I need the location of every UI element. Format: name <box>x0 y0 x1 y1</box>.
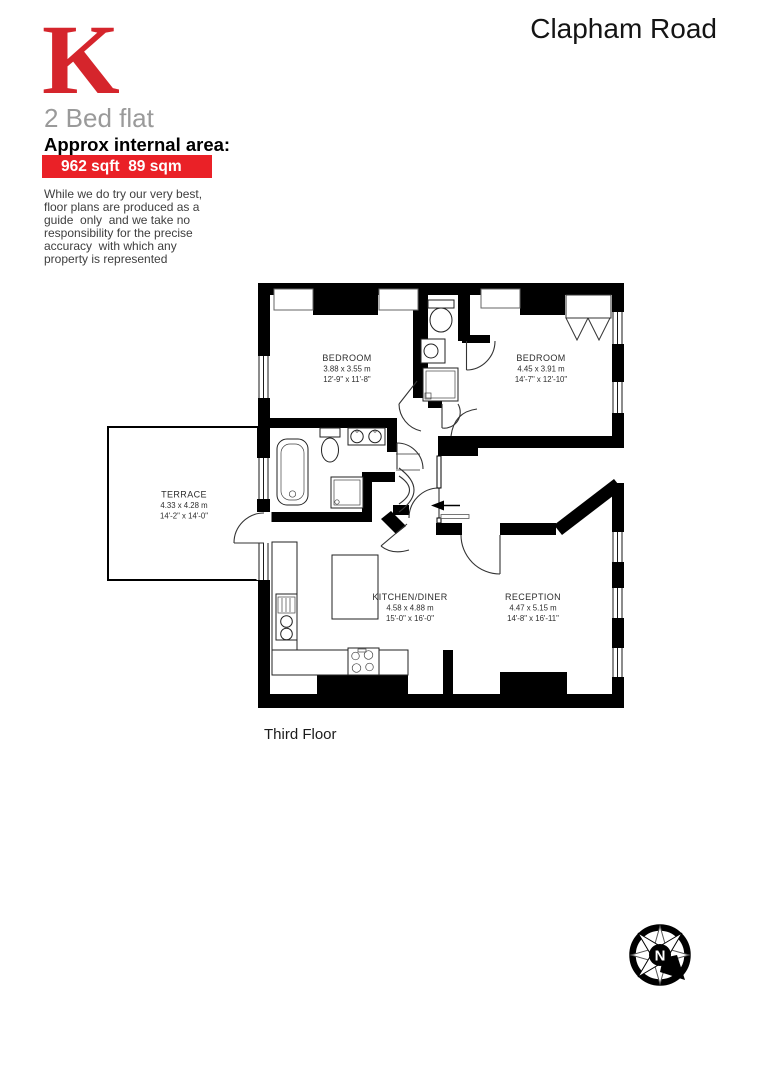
kitchen-island <box>332 555 378 619</box>
room-label-terrace: TERRACE 4.33 x 4.28 m 14'-2" x 14'-0" <box>160 490 208 521</box>
windows <box>257 312 626 677</box>
compass-north-label: N <box>655 948 666 965</box>
wardrobe-icon <box>566 295 611 340</box>
window <box>611 532 626 562</box>
floorplan-page: K Clapham Road 2 Bed flat Approx interna… <box>0 0 764 1080</box>
room-label-bedroom1: BEDROOM 3.88 x 3.55 m 12'-9" x 11'-8" <box>322 353 371 384</box>
double-basin-icon <box>348 428 385 445</box>
floorplan-drawing: BEDROOM 3.88 x 3.55 m 12'-9" x 11'-8" BE… <box>0 0 764 1080</box>
svg-text:3.88 x 3.55 m: 3.88 x 3.55 m <box>323 365 370 374</box>
room-label-reception: RECEPTION 4.47 x 5.15 m 14'-8" x 16'-11" <box>505 592 561 623</box>
svg-text:12'-9" x 11'-8": 12'-9" x 11'-8" <box>323 375 371 384</box>
terrace-door-opening <box>257 512 272 543</box>
svg-text:RECEPTION: RECEPTION <box>505 592 561 602</box>
room-label-kitchen-diner: KITCHEN/DINER 4.58 x 4.88 m 15'-0" x 16'… <box>372 592 447 623</box>
svg-text:14'-8" x 16'-11": 14'-8" x 16'-11" <box>507 614 559 623</box>
svg-text:4.33 x 4.28 m: 4.33 x 4.28 m <box>160 501 207 510</box>
svg-text:KITCHEN/DINER: KITCHEN/DINER <box>372 592 447 602</box>
shower-icon <box>331 477 363 508</box>
toilet-icon <box>320 428 340 462</box>
toilet-icon <box>428 300 454 332</box>
room-label-bedroom2: BEDROOM 4.45 x 3.91 m 14'-7" x 12'-10" <box>515 353 568 384</box>
svg-text:14'-2" x 14'-0": 14'-2" x 14'-0" <box>160 512 208 521</box>
svg-text:BEDROOM: BEDROOM <box>516 353 565 363</box>
svg-text:4.58 x 4.88 m: 4.58 x 4.88 m <box>386 604 433 613</box>
entrance-arrow-icon <box>431 501 460 511</box>
entrance-partition <box>437 456 469 523</box>
hob-icon <box>348 648 379 675</box>
window <box>611 382 626 413</box>
shower-icon <box>423 368 458 401</box>
svg-text:TERRACE: TERRACE <box>161 490 207 500</box>
svg-text:4.47 x 5.15 m: 4.47 x 5.15 m <box>509 604 556 613</box>
window <box>611 648 626 677</box>
svg-text:14'-7" x 12'-10": 14'-7" x 12'-10" <box>515 375 568 384</box>
svg-text:4.45 x 3.91 m: 4.45 x 3.91 m <box>517 365 564 374</box>
window <box>257 356 272 398</box>
window <box>611 312 626 344</box>
svg-text:15'-0" x 16'-0": 15'-0" x 16'-0" <box>386 614 434 623</box>
basin-icon <box>421 339 445 363</box>
window <box>611 588 626 618</box>
compass-rose-icon: N <box>631 926 689 984</box>
bath-icon <box>277 439 308 505</box>
kitchen-sink-icon <box>276 594 297 640</box>
svg-text:BEDROOM: BEDROOM <box>322 353 371 363</box>
window <box>257 543 272 580</box>
window <box>257 458 272 499</box>
